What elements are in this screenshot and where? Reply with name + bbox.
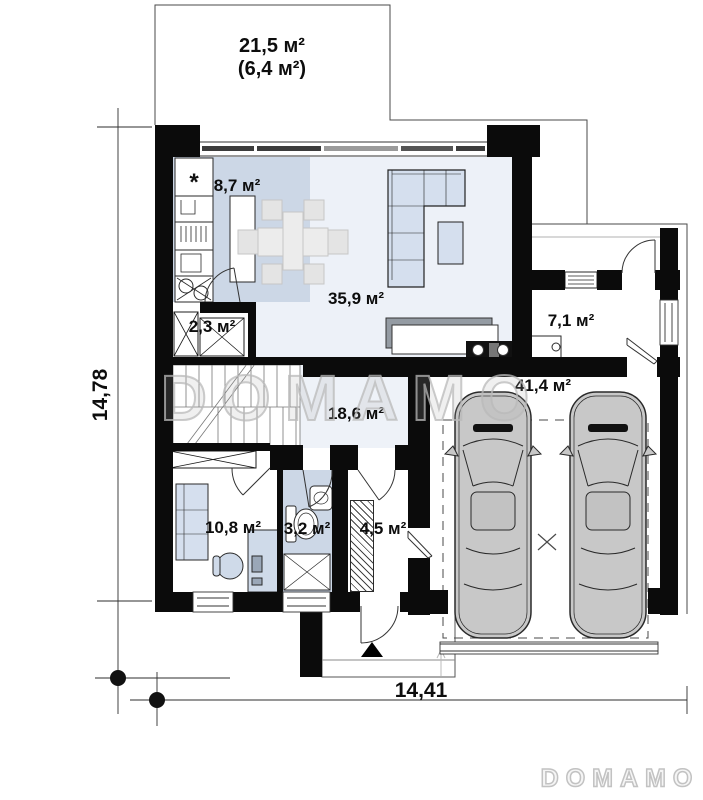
window-vestibule xyxy=(660,300,678,345)
terrace-area-secondary: (6,4 м²) xyxy=(238,58,306,81)
sink-icon xyxy=(310,486,332,510)
door-leaf-vestibule-garage xyxy=(627,338,657,364)
room-label-vestibule: 7,1 м² xyxy=(548,311,595,331)
boiler-icon xyxy=(350,500,374,592)
dimension-width: 14,41 xyxy=(395,679,448,703)
entrance-marker-icon xyxy=(361,642,383,657)
terrace-label: 21,5 м² (6,4 м²) xyxy=(238,35,306,81)
entry-porch xyxy=(322,610,455,677)
terrace-area: 21,5 м² xyxy=(238,35,306,58)
window-bathroom xyxy=(283,592,330,612)
dimension-height: 14,78 xyxy=(89,369,113,422)
watermark: DOMAMO xyxy=(161,361,544,435)
room-label-boiler-room: 4,5 м² xyxy=(360,519,407,539)
office-chair-icon xyxy=(217,553,243,579)
door-arc-main-entrance xyxy=(361,606,398,643)
hall-wardrobe-icon xyxy=(170,451,256,468)
bench-icon xyxy=(531,336,561,358)
brand-logo: DOMAMO xyxy=(541,765,700,794)
door-arc-front xyxy=(622,240,655,273)
fridge-symbol: * xyxy=(189,169,198,197)
door-leaf-hall-garage xyxy=(408,531,432,558)
room-label-pantry: 2,3 м² xyxy=(189,317,236,337)
door-arc-office xyxy=(232,468,270,495)
room-label-living-room: 35,9 м² xyxy=(328,289,384,309)
room-label-kitchen: 8,7 м² xyxy=(214,176,261,196)
garage-gate xyxy=(440,642,658,654)
coffee-table-icon xyxy=(438,222,463,264)
office-sofa-icon xyxy=(176,484,208,560)
office-furniture xyxy=(176,484,278,592)
window-top-band xyxy=(200,141,487,157)
door-arc-boiler-room xyxy=(358,470,395,500)
room-label-bathroom: 3,2 м² xyxy=(284,519,331,539)
floor-plan-canvas: 21,5 м² (6,4 м²) 8,7 м² 35,9 м² 2,3 м² 7… xyxy=(0,0,703,800)
window-office xyxy=(193,592,233,612)
room-label-office: 10,8 м² xyxy=(205,518,261,538)
